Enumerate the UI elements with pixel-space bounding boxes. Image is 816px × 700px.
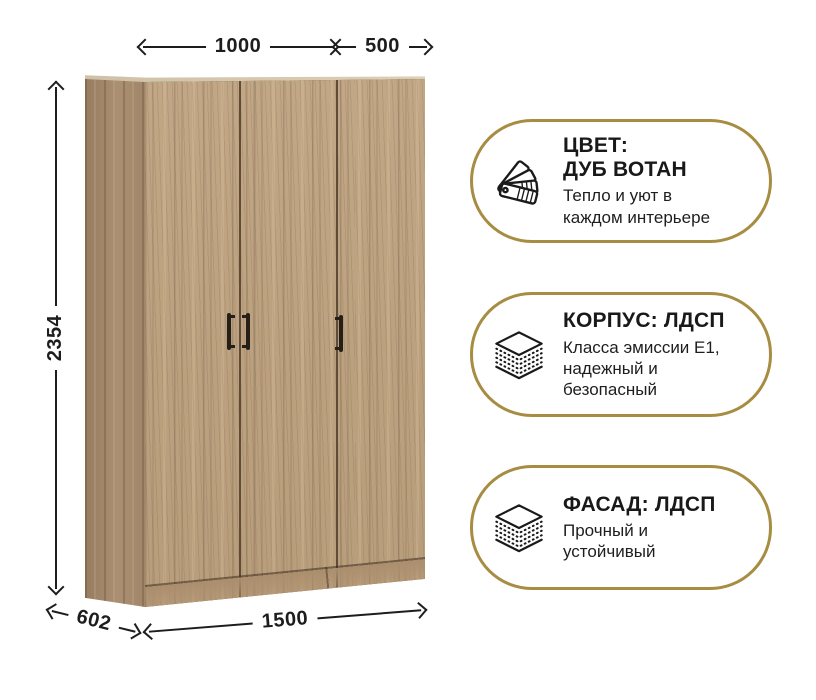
feature-card-color: ЦВЕТ: ДУБ ВОТАН Тепло и уют в каждом инт… [470, 119, 772, 243]
layers-icon [489, 326, 549, 384]
card-subtitle: Тепло и уют в каждом интерьере [563, 185, 710, 227]
door-handle-right [339, 315, 343, 352]
dimension-label: 1500 [252, 607, 318, 632]
card-subtitle-line: Прочный и [563, 520, 716, 541]
dimension-label: 500 [356, 36, 409, 56]
card-title-line: ФАСАД: ЛДСП [563, 493, 716, 517]
card-subtitle-line: каждом интерьере [563, 207, 710, 228]
wardrobe-front [145, 78, 425, 608]
dimension-line [55, 370, 57, 589]
arrowhead-left-icon [143, 623, 160, 640]
card-subtitle: Класса эмиссии Е1, надежный и безопасный [563, 337, 725, 400]
card-title-line: ДУБ ВОТАН [563, 158, 710, 182]
card-title: ФАСАД: ЛДСП [563, 493, 716, 517]
arrowhead-left-icon [332, 39, 349, 56]
arrowhead-bottom-icon [48, 579, 65, 596]
door-handle-left [227, 313, 231, 350]
card-subtitle-line: надежный и [563, 358, 725, 379]
feature-card-facade: ФАСАД: ЛДСП Прочный и устойчивый [470, 465, 772, 590]
arrowhead-top-icon [48, 81, 65, 98]
door-handle-middle [246, 313, 250, 350]
wardrobe [85, 78, 425, 608]
wardrobe-door-right [338, 78, 425, 608]
dimension-line [149, 623, 253, 633]
card-title-line: КОРПУС: ЛДСП [563, 309, 725, 333]
dimension-line [317, 609, 421, 619]
card-title: КОРПУС: ЛДСП [563, 309, 725, 333]
wardrobe-door-left [145, 78, 239, 608]
dimension-height-2354: 2354 [45, 83, 67, 593]
feature-card-body: КОРПУС: ЛДСП Класса эмиссии Е1, надежный… [470, 292, 772, 417]
dimension-line [55, 87, 57, 306]
card-title-line: ЦВЕТ: [563, 134, 710, 158]
arrowhead-left-icon [46, 603, 62, 619]
card-subtitle-line: устойчивый [563, 541, 716, 562]
dimension-label: 2354 [45, 306, 65, 371]
card-subtitle: Прочный и устойчивый [563, 520, 716, 562]
product-infographic: 1000 500 2354 602 1500 [0, 0, 816, 700]
dimension-label: 602 [66, 604, 122, 636]
dimension-width-500: 500 [334, 36, 431, 58]
card-title: ЦВЕТ: ДУБ ВОТАН [563, 134, 710, 181]
dimension-width-1000: 1000 [139, 36, 337, 58]
arrowhead-right-icon [417, 39, 434, 56]
wardrobe-door-middle [241, 78, 336, 608]
wardrobe-side-panel [85, 78, 145, 608]
card-subtitle-line: Класса эмиссии Е1, [563, 337, 725, 358]
color-swatches-icon [489, 152, 549, 210]
arrowhead-left-icon [137, 39, 154, 56]
dimension-label: 1000 [206, 36, 271, 56]
layers-icon [489, 499, 549, 557]
card-subtitle-line: безопасный [563, 379, 725, 400]
arrowhead-right-icon [411, 602, 428, 619]
arrowhead-right-icon [125, 623, 141, 639]
card-subtitle-line: Тепло и уют в [563, 185, 710, 206]
